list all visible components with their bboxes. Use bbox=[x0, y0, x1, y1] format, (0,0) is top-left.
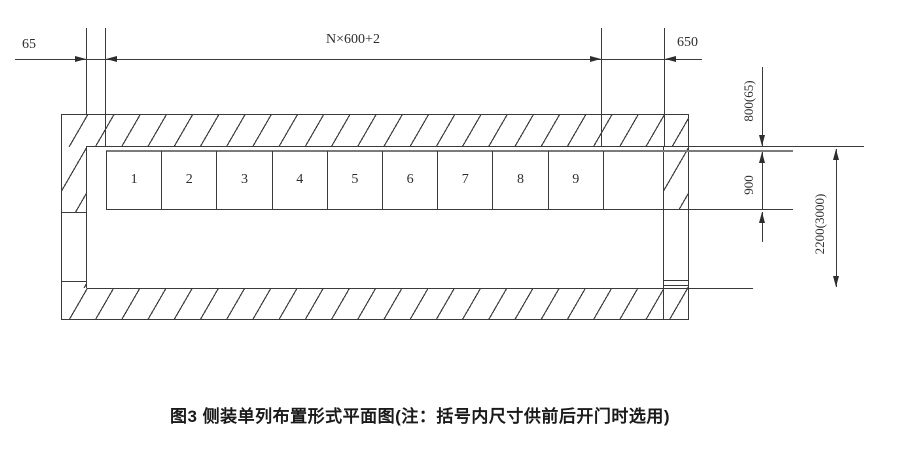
dim-label-65: 65 bbox=[22, 37, 36, 53]
extension-line-wall-inner-left bbox=[86, 28, 87, 115]
dim-label-800: 800(65) bbox=[741, 80, 757, 121]
wall-top-inner-edge-line bbox=[87, 146, 864, 147]
wall-bottom-inner-edge-line bbox=[87, 288, 753, 289]
cabinet-row-back-edge-line bbox=[106, 209, 793, 210]
cabinet-cell-7: 7 bbox=[437, 151, 492, 209]
cabinet-cell-6: 6 bbox=[382, 151, 437, 209]
wall-left-door-opening bbox=[61, 213, 87, 281]
cabinet-cell-9: 9 bbox=[548, 151, 603, 209]
wall-right-door-opening bbox=[663, 209, 689, 280]
dim-label-900: 900 bbox=[741, 175, 757, 195]
cabinet-cell-3: 3 bbox=[216, 151, 271, 209]
dim-line-2200 bbox=[836, 149, 837, 287]
wall-bottom bbox=[61, 288, 664, 320]
figure-canvas: 65 N×600+2 650 1 2 3 4 5 6 7 8 9 800(65)… bbox=[0, 0, 903, 456]
cabinet-cell-4: 4 bbox=[272, 151, 327, 209]
arrowhead-right-at-65 bbox=[75, 56, 86, 62]
cabinet-cell-8: 8 bbox=[492, 151, 547, 209]
cabinet-cell-spare bbox=[603, 151, 663, 209]
arrowhead-up-900-bottom bbox=[759, 212, 765, 223]
wall-left-lower bbox=[61, 281, 87, 288]
cabinet-cell-1: 1 bbox=[106, 151, 161, 209]
figure-caption: 图3 侧装单列布置形式平面图(注：括号内尺寸供前后开门时选用) bbox=[170, 402, 670, 427]
arrowhead-up-900-top bbox=[759, 152, 765, 163]
wall-left-upper bbox=[61, 146, 87, 213]
arrowhead-down-2200 bbox=[833, 276, 839, 287]
cabinet-cell-5: 5 bbox=[327, 151, 382, 209]
wall-right-upper bbox=[663, 146, 689, 209]
arrowhead-right-at-row-end bbox=[590, 56, 601, 62]
dim-label-2200: 2200(3000) bbox=[812, 194, 828, 255]
arrowhead-left-at-650 bbox=[665, 56, 676, 62]
arrowhead-up-2200 bbox=[833, 149, 839, 160]
wall-right-lower bbox=[663, 285, 689, 320]
dim-label-n600: N×600+2 bbox=[326, 32, 380, 48]
arrowhead-down-800 bbox=[759, 135, 765, 146]
wall-top bbox=[61, 114, 689, 147]
cabinet-cell-2: 2 bbox=[161, 151, 216, 209]
dim-label-650: 650 bbox=[677, 35, 698, 51]
arrowhead-left-at-row-start bbox=[106, 56, 117, 62]
